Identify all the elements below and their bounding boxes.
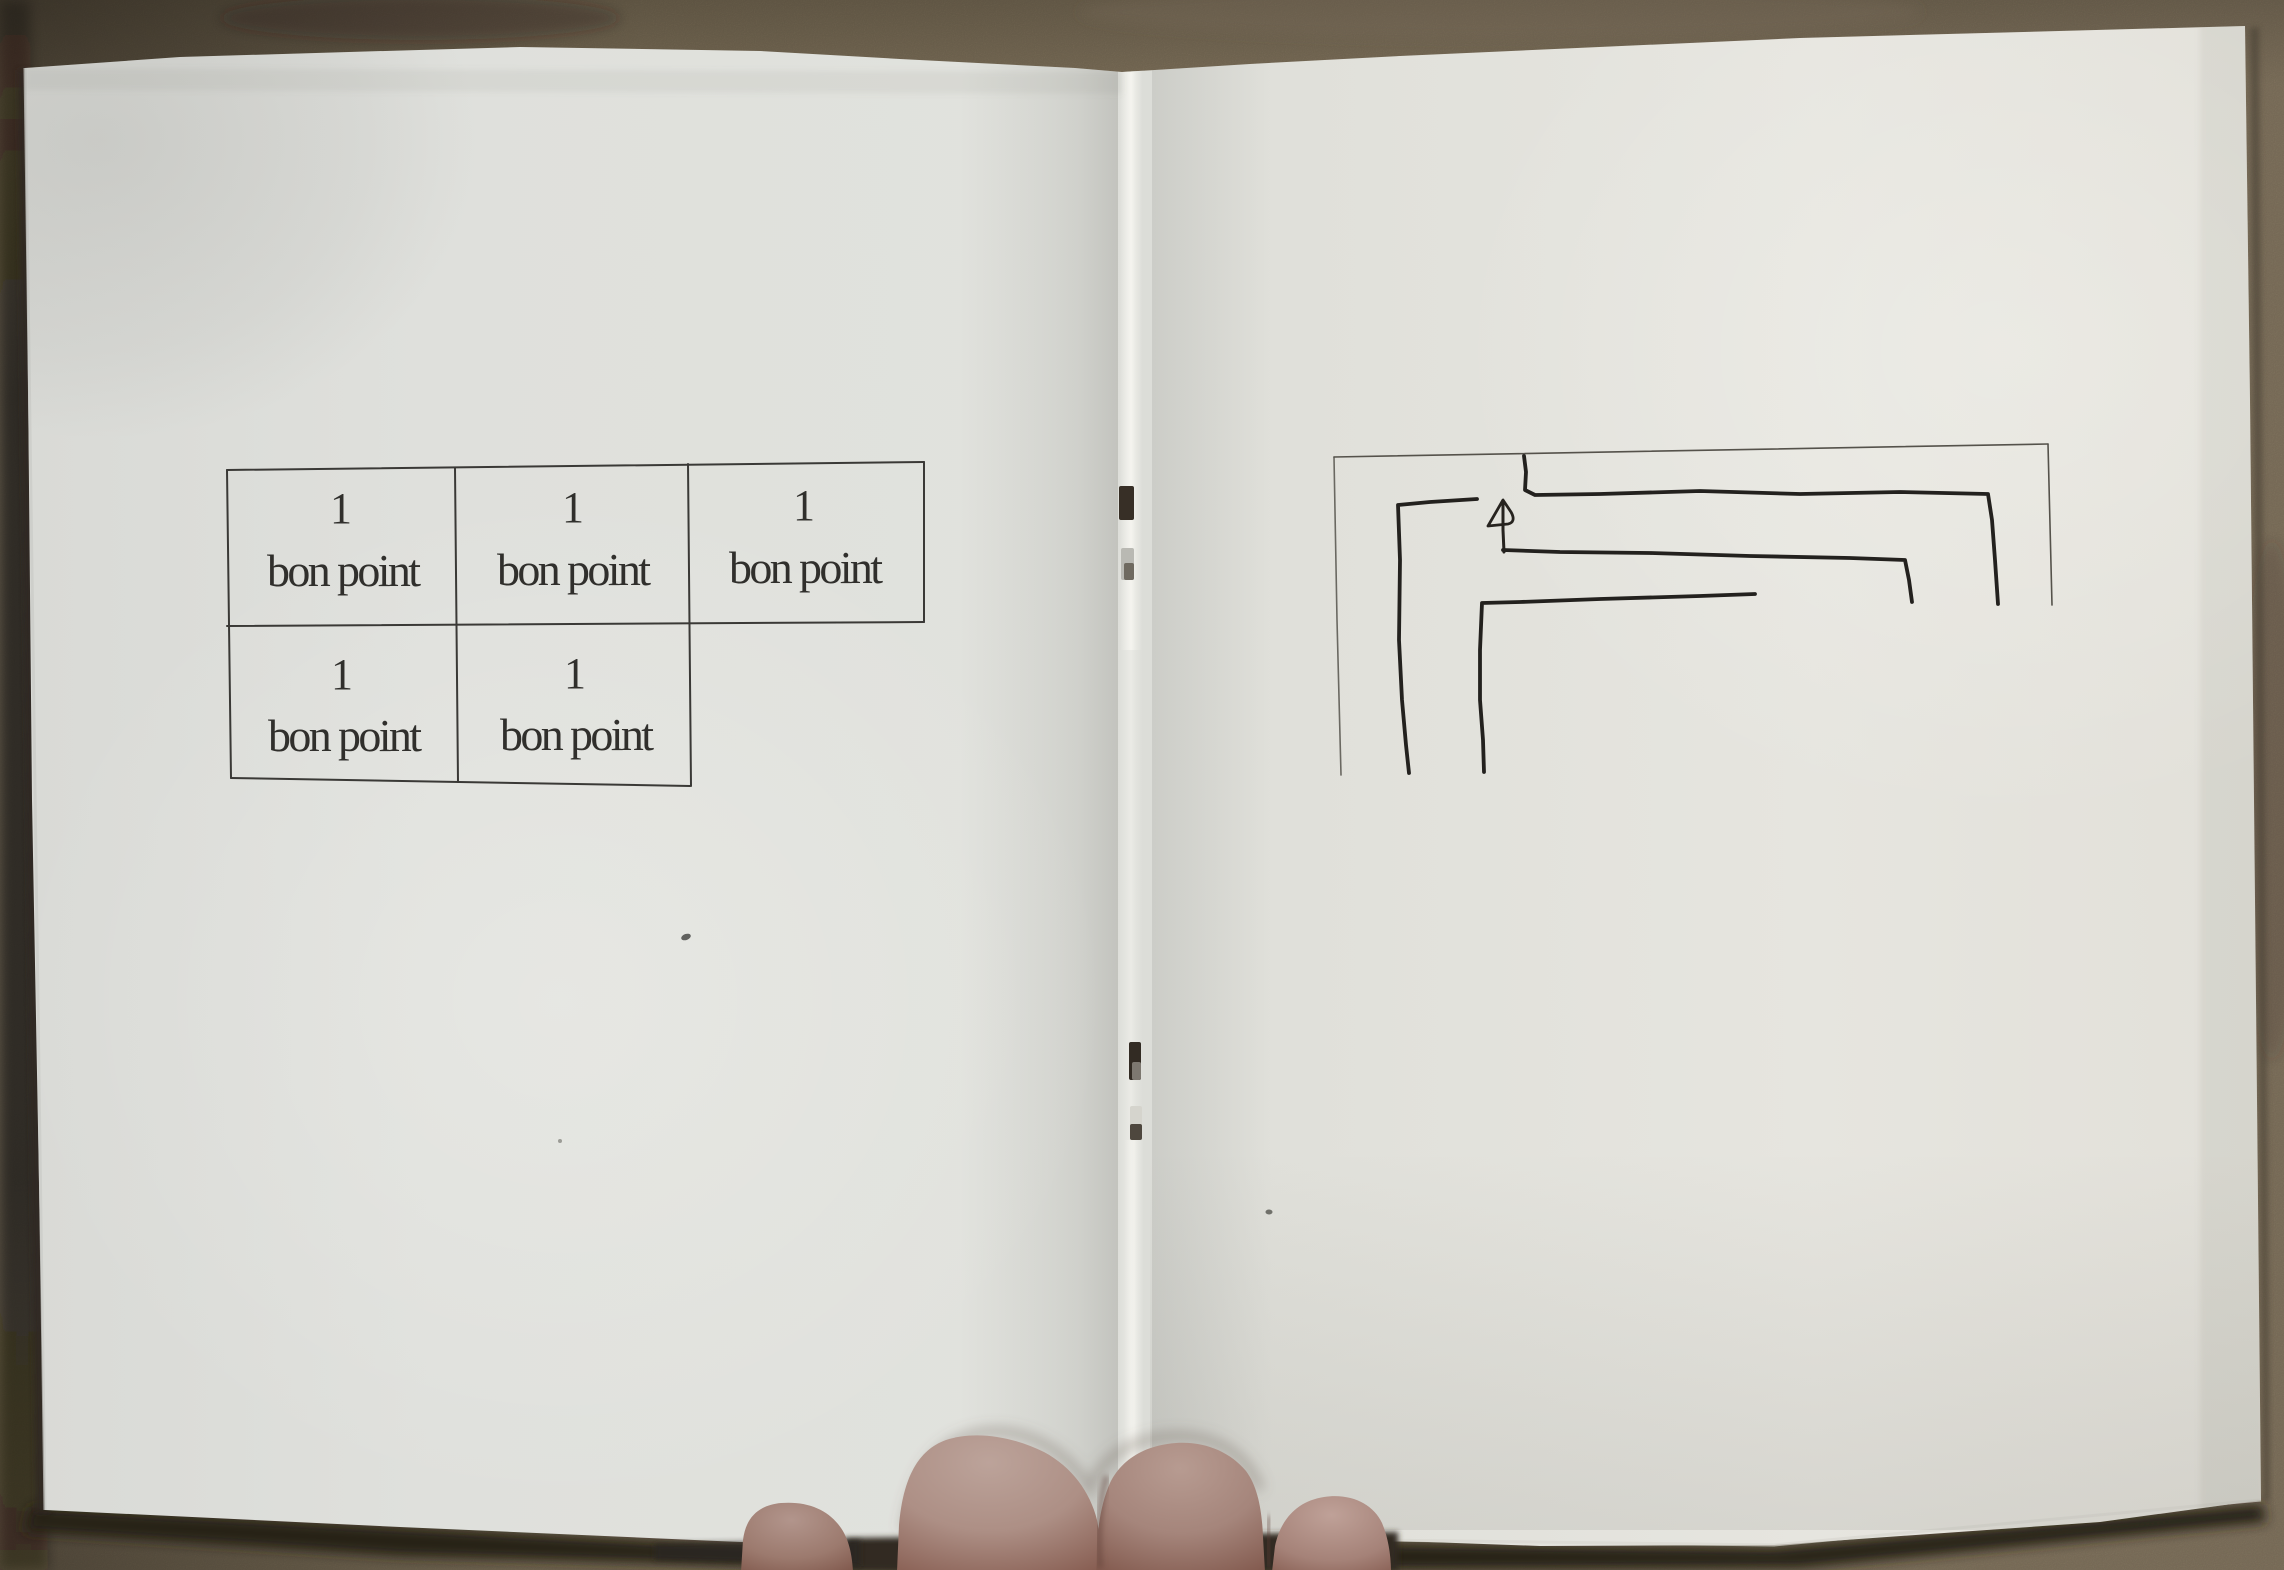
svg-text:1: 1 [331, 650, 353, 699]
svg-text:1: 1 [564, 649, 586, 698]
svg-text:bon point: bon point [500, 709, 654, 760]
svg-text:1: 1 [330, 484, 352, 533]
svg-text:bon point: bon point [497, 544, 651, 595]
svg-text:bon point: bon point [729, 542, 883, 593]
svg-text:1: 1 [562, 483, 584, 532]
svg-text:bon point: bon point [268, 710, 422, 761]
svg-text:1: 1 [793, 481, 815, 530]
svg-text:bon point: bon point [267, 545, 421, 596]
